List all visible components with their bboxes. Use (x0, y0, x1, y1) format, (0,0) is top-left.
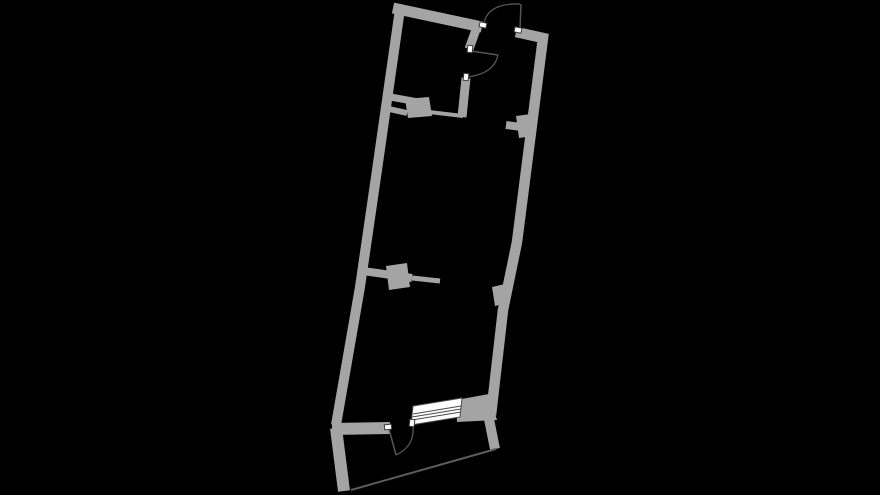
room-bottom-thin-wall (429, 112, 463, 116)
right-stub-column (516, 114, 534, 138)
left-stub-bar-thin (412, 278, 440, 281)
balcony-door-leaf (389, 429, 396, 455)
entry-door-leaf (520, 4, 521, 29)
balcony-left-wall (336, 428, 344, 491)
left-stub-column (386, 263, 410, 290)
top-wall (393, 8, 482, 27)
right-wall (491, 32, 543, 415)
entry-door-swing-arc (484, 4, 520, 23)
room-door-jamb-marker-1 (463, 73, 469, 80)
left-wall (336, 9, 400, 425)
entry-door-jamb-marker-1 (514, 27, 522, 33)
room-door-jamb-marker-0 (467, 45, 473, 52)
balcony-door-jamb-marker-0 (384, 424, 391, 430)
room-door-swing-arc (467, 55, 498, 77)
balcony-window-frame (411, 398, 462, 425)
balcony-front-edge (351, 449, 496, 490)
balcony-window-jamb-marker (409, 419, 415, 426)
room-bottom-bar-lower (389, 109, 407, 113)
room-door-leaf (471, 51, 498, 55)
floorplan-canvas (0, 0, 880, 495)
balcony-door-swing-arc (396, 426, 413, 455)
room-partition-lower (462, 78, 466, 117)
room-bottom-column (405, 97, 432, 118)
balcony-right-wall (489, 419, 495, 449)
floorplan-svg (0, 0, 880, 495)
entry-door-jamb-marker-0 (479, 22, 487, 28)
